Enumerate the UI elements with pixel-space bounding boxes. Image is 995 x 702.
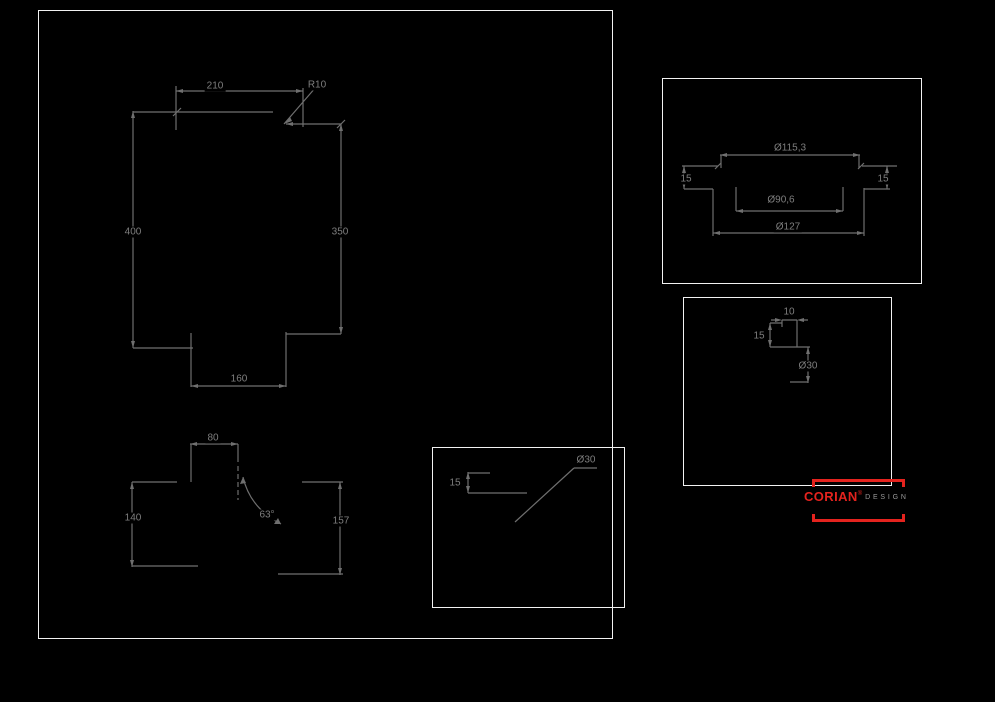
section-inner-diameter-label: Ø90,6 <box>765 195 796 206</box>
main-width-bottom-label: 160 <box>229 374 250 385</box>
hole-edge-distance-label: 15 <box>447 478 462 489</box>
registered-mark: ® <box>858 491 862 497</box>
main-corner-radius-label: R10 <box>306 80 328 91</box>
dimension-linework <box>0 0 995 702</box>
side-height-right-label: 157 <box>331 516 352 527</box>
logo-frame-top-bar <box>812 479 905 487</box>
section-rim-right-label: 15 <box>875 174 890 185</box>
drain-offset-width-label: 10 <box>781 307 796 318</box>
technical-drawing-sheet: { "colors": { "background": "#000000", "… <box>0 0 995 702</box>
drain-detail-linework <box>768 318 810 383</box>
side-width-top-label: 80 <box>205 433 220 444</box>
main-view-linework <box>131 86 345 388</box>
main-height-right-label: 350 <box>330 227 351 238</box>
section-rim-left-label: 15 <box>678 174 693 185</box>
section-outer-diameter-label: Ø127 <box>774 222 802 233</box>
drain-offset-depth-label: 15 <box>751 331 766 342</box>
side-view-linework <box>130 442 343 575</box>
main-height-left-label: 400 <box>123 227 144 238</box>
hole-detail-linework <box>466 468 597 522</box>
side-angle-label: 63° <box>257 510 276 521</box>
section-top-diameter-label: Ø115,3 <box>772 143 808 154</box>
corian-logo: CORIAN ® DESIGN <box>804 490 909 503</box>
logo-frame-bottom-bar <box>812 514 905 522</box>
main-width-top-label: 210 <box>205 81 226 92</box>
hole-diameter-label: Ø30 <box>575 455 598 466</box>
side-height-left-label: 140 <box>123 513 144 524</box>
logo-suffix-text: DESIGN <box>865 494 909 501</box>
logo-brand-text: CORIAN <box>804 490 858 503</box>
drain-hole-diameter-label: Ø30 <box>797 361 820 372</box>
